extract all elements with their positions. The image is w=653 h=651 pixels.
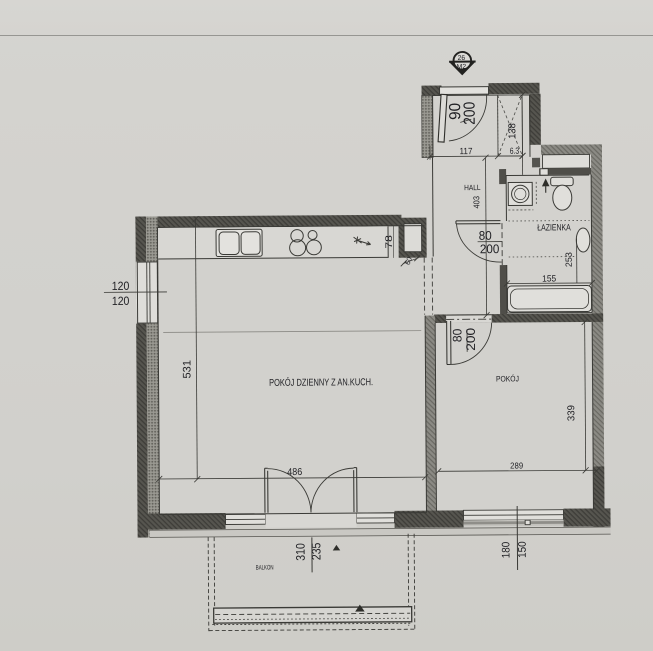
svg-text:253: 253 <box>564 252 574 267</box>
svg-text:HALL: HALL <box>464 183 481 192</box>
svg-text:200: 200 <box>480 242 500 256</box>
svg-text:339: 339 <box>566 405 577 421</box>
svg-text:200: 200 <box>464 328 478 351</box>
svg-text:155: 155 <box>542 274 556 284</box>
svg-text:120: 120 <box>112 294 130 308</box>
svg-text:235: 235 <box>309 543 323 561</box>
svg-text:120: 120 <box>112 279 130 293</box>
svg-text:M2: M2 <box>457 64 467 71</box>
svg-text:BALKON: BALKON <box>256 564 274 571</box>
svg-text:531: 531 <box>181 360 193 379</box>
svg-text:POKÓJ DZIENNY Z AN.KUCH.: POKÓJ DZIENNY Z AN.KUCH. <box>269 375 373 389</box>
svg-text:180: 180 <box>500 542 512 559</box>
svg-text:200: 200 <box>462 102 479 125</box>
svg-text:403: 403 <box>471 196 481 209</box>
svg-text:80: 80 <box>450 329 464 343</box>
svg-text:78: 78 <box>384 235 395 249</box>
svg-text:310: 310 <box>294 543 308 561</box>
svg-text:6.3: 6.3 <box>510 146 520 156</box>
svg-text:80: 80 <box>479 229 492 243</box>
svg-text:POKÓJ: POKÓJ <box>496 374 519 383</box>
svg-text:486: 486 <box>287 467 302 478</box>
svg-text:ŁAZIENKA: ŁAZIENKA <box>537 222 571 232</box>
svg-text:117: 117 <box>459 146 472 156</box>
svg-text:150: 150 <box>517 541 529 558</box>
svg-text:289: 289 <box>510 460 523 470</box>
svg-text:138: 138 <box>507 123 518 139</box>
svg-text:26: 26 <box>458 55 466 62</box>
